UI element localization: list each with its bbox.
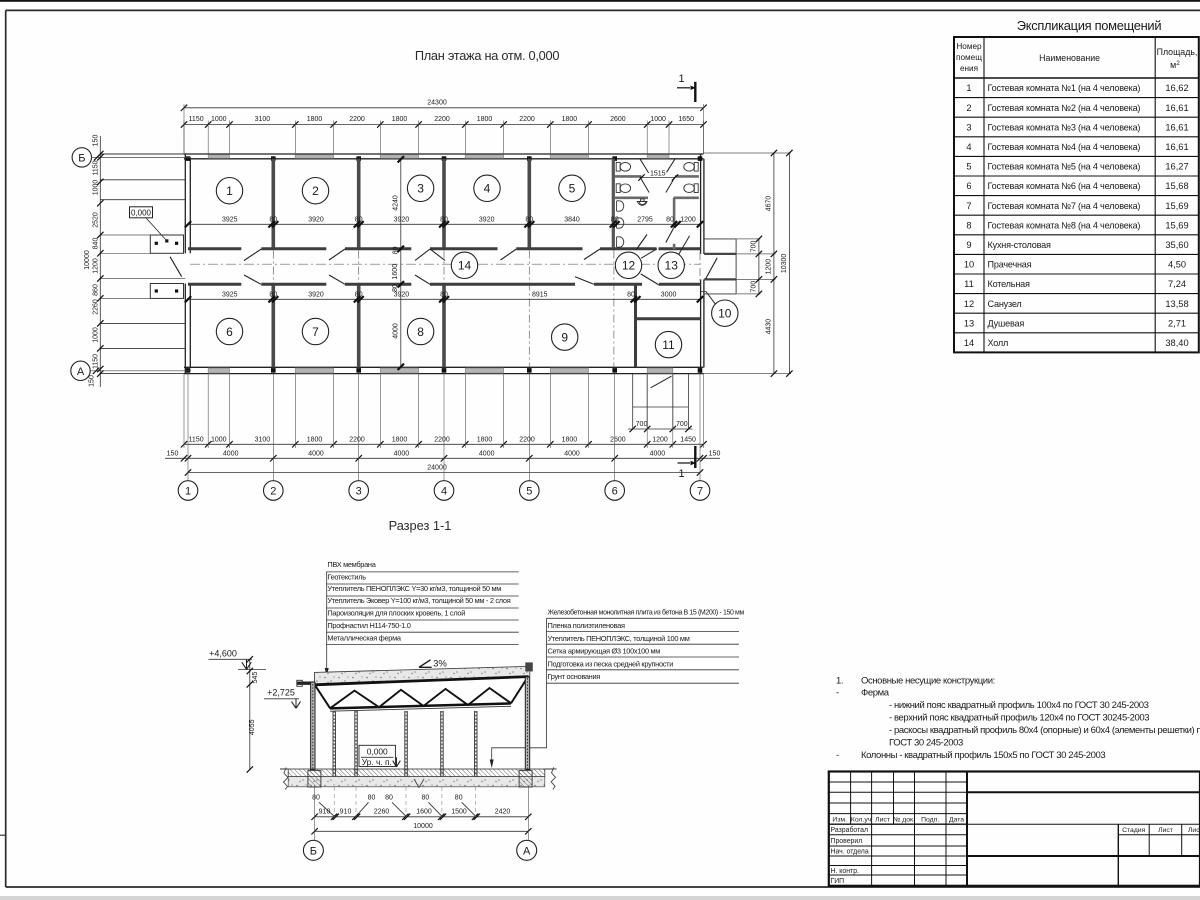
svg-text:1800: 1800 bbox=[392, 436, 408, 443]
svg-text:80: 80 bbox=[392, 284, 399, 292]
svg-text:3: 3 bbox=[417, 182, 424, 196]
svg-text:13,58: 13,58 bbox=[1165, 299, 1188, 309]
svg-text:1150: 1150 bbox=[189, 436, 204, 443]
svg-text:4000: 4000 bbox=[650, 450, 666, 457]
svg-text:Гостевая комната №8 (на 4 чело: Гостевая комната №8 (на 4 человека) bbox=[988, 220, 1141, 230]
svg-text:Листов: Листов bbox=[1188, 827, 1200, 834]
svg-text:Гостевая комната №4 (на 4 чело: Гостевая комната №4 (на 4 человека) bbox=[988, 142, 1141, 152]
svg-text:2200: 2200 bbox=[519, 436, 535, 443]
svg-text:3: 3 bbox=[356, 486, 362, 498]
svg-text:4: 4 bbox=[484, 182, 491, 196]
svg-text:Дата: Дата bbox=[949, 817, 964, 824]
svg-text:1200: 1200 bbox=[765, 259, 772, 275]
svg-text:+4,600: +4,600 bbox=[209, 648, 237, 658]
svg-text:5: 5 bbox=[526, 486, 532, 498]
svg-text:ПВХ мембрана: ПВХ мембрана bbox=[327, 560, 376, 569]
svg-text:Разрез 1-1: Разрез 1-1 bbox=[389, 518, 452, 533]
svg-text:9: 9 bbox=[966, 240, 971, 250]
svg-text:Колонны - квадратный профиль 1: Колонны - квадратный профиль 150х5 по ГО… bbox=[861, 750, 1105, 761]
svg-text:16,61: 16,61 bbox=[1165, 122, 1188, 132]
svg-text:ГИП: ГИП bbox=[831, 878, 845, 885]
svg-text:10000: 10000 bbox=[84, 250, 91, 270]
svg-text:2200: 2200 bbox=[434, 436, 450, 443]
svg-text:4000: 4000 bbox=[392, 323, 399, 339]
svg-text:Ур. ч. п.: Ур. ч. п. bbox=[362, 757, 392, 767]
svg-text:80: 80 bbox=[385, 795, 393, 802]
svg-text:3920: 3920 bbox=[479, 216, 495, 223]
svg-text:1800: 1800 bbox=[392, 116, 408, 123]
svg-text:15,69: 15,69 bbox=[1165, 201, 1188, 211]
svg-text:16,62: 16,62 bbox=[1165, 83, 1188, 93]
svg-text:14: 14 bbox=[964, 338, 974, 348]
svg-text:7: 7 bbox=[312, 325, 319, 339]
svg-text:Душевая: Душевая bbox=[988, 318, 1025, 328]
svg-text:3920: 3920 bbox=[308, 291, 324, 298]
svg-text:10000: 10000 bbox=[413, 823, 433, 830]
svg-text:Кол.уч: Кол.уч bbox=[851, 817, 872, 824]
svg-text:2600: 2600 bbox=[610, 436, 626, 443]
svg-text:80: 80 bbox=[355, 291, 363, 298]
svg-text:10: 10 bbox=[964, 260, 974, 270]
svg-text:ения: ения bbox=[960, 64, 978, 73]
svg-text:Железобетонная монолитная плит: Железобетонная монолитная плита из бетон… bbox=[548, 609, 745, 617]
svg-text:150: 150 bbox=[89, 375, 96, 387]
svg-text:Котельная: Котельная bbox=[988, 279, 1030, 289]
svg-text:4000: 4000 bbox=[223, 450, 239, 457]
svg-text:2200: 2200 bbox=[349, 116, 365, 123]
svg-text:4000: 4000 bbox=[479, 450, 495, 457]
svg-text:80: 80 bbox=[666, 216, 674, 223]
svg-text:2795: 2795 bbox=[637, 216, 653, 223]
svg-text:910: 910 bbox=[340, 809, 352, 816]
svg-text:12: 12 bbox=[964, 299, 974, 309]
svg-text:12: 12 bbox=[622, 259, 636, 273]
svg-text:13: 13 bbox=[665, 259, 679, 273]
svg-text:- верхний пояс квадратный проф: - верхний пояс квадратный профиль 120х4 … bbox=[889, 713, 1149, 724]
svg-text:4240: 4240 bbox=[392, 195, 399, 211]
svg-text:Гостевая комната №7 (на 4 чело: Гостевая комната №7 (на 4 человека) bbox=[988, 201, 1141, 211]
svg-text:3925: 3925 bbox=[222, 216, 238, 223]
svg-text:4,50: 4,50 bbox=[1168, 260, 1186, 270]
svg-text:1200: 1200 bbox=[680, 216, 696, 223]
svg-text:Номер: Номер bbox=[956, 42, 982, 51]
svg-text:Утеплитель ПЕНОПЛЭКС Y=30 кг/м: Утеплитель ПЕНОПЛЭКС Y=30 кг/м3, толщино… bbox=[327, 584, 501, 593]
svg-text:Ферма: Ферма bbox=[861, 688, 890, 699]
svg-text:ГОСТ 30 245-2003: ГОСТ 30 245-2003 bbox=[889, 738, 963, 749]
svg-text:Изм.: Изм. bbox=[832, 817, 847, 824]
svg-text:5: 5 bbox=[966, 162, 971, 172]
svg-text:910: 910 bbox=[319, 809, 331, 816]
svg-text:Грунт основания: Грунт основания bbox=[548, 672, 601, 681]
svg-text:1: 1 bbox=[678, 468, 684, 480]
svg-text:1800: 1800 bbox=[562, 116, 578, 123]
svg-text:150: 150 bbox=[167, 450, 179, 457]
svg-text:1800: 1800 bbox=[307, 436, 323, 443]
svg-text:2260: 2260 bbox=[374, 809, 390, 816]
svg-text:2260: 2260 bbox=[92, 299, 99, 315]
svg-text:Б: Б bbox=[78, 152, 85, 164]
svg-text:11: 11 bbox=[964, 279, 974, 289]
svg-text:11: 11 bbox=[662, 338, 675, 352]
svg-text:1200: 1200 bbox=[92, 258, 99, 274]
svg-text:2,71: 2,71 bbox=[1168, 318, 1186, 328]
svg-text:2520: 2520 bbox=[92, 212, 99, 228]
svg-text:1000: 1000 bbox=[650, 116, 666, 123]
svg-text:1450: 1450 bbox=[680, 436, 696, 443]
svg-text:1000: 1000 bbox=[92, 180, 99, 196]
svg-text:2200: 2200 bbox=[434, 116, 450, 123]
svg-text:7: 7 bbox=[966, 201, 971, 211]
svg-text:860: 860 bbox=[92, 284, 99, 296]
svg-text:80: 80 bbox=[312, 795, 320, 802]
svg-text:8915: 8915 bbox=[532, 291, 548, 298]
svg-text:1600: 1600 bbox=[416, 809, 432, 816]
svg-text:6: 6 bbox=[226, 325, 233, 339]
svg-text:Гостевая комната №3 (на 4 чело: Гостевая комната №3 (на 4 человека) bbox=[988, 122, 1141, 132]
svg-text:4: 4 bbox=[966, 142, 971, 152]
svg-text:2: 2 bbox=[312, 184, 319, 198]
svg-text:Лист: Лист bbox=[1158, 827, 1173, 834]
svg-text:545: 545 bbox=[252, 672, 259, 684]
svg-text:3000: 3000 bbox=[661, 291, 677, 298]
svg-text:Экспликация помещений: Экспликация помещений bbox=[1017, 18, 1162, 33]
svg-text:4: 4 bbox=[441, 486, 447, 498]
svg-text:4670: 4670 bbox=[765, 196, 772, 212]
svg-text:3925: 3925 bbox=[222, 291, 238, 298]
svg-text:Подготовка из песка средней кр: Подготовка из песка средней крупности bbox=[548, 659, 674, 668]
svg-text:1.: 1. bbox=[836, 675, 843, 686]
svg-text:1515: 1515 bbox=[650, 170, 666, 177]
svg-text:2: 2 bbox=[966, 103, 971, 113]
svg-text:1000: 1000 bbox=[211, 116, 227, 123]
svg-text:Утеплитель Эковер Y=100 кг/м3,: Утеплитель Эковер Y=100 кг/м3, толщиной … bbox=[327, 596, 510, 605]
svg-text:80: 80 bbox=[269, 216, 277, 223]
svg-text:9: 9 bbox=[561, 330, 568, 344]
svg-text:№ док.: № док. bbox=[893, 817, 915, 824]
svg-text:Утеплитель ПЕНОПЛЭКС, толщиной: Утеплитель ПЕНОПЛЭКС, толщиной 100 мм bbox=[548, 634, 690, 643]
svg-text:1150: 1150 bbox=[92, 354, 99, 369]
svg-text:4000: 4000 bbox=[564, 450, 580, 457]
svg-text:7: 7 bbox=[697, 486, 703, 498]
svg-text:1000: 1000 bbox=[92, 327, 99, 343]
svg-text:Кухня-столовая: Кухня-столовая bbox=[988, 240, 1051, 250]
svg-text:- раскосы квадратный профиль 8: - раскосы квадратный профиль 80х4 (опорн… bbox=[889, 725, 1200, 736]
svg-text:помещ: помещ bbox=[956, 53, 982, 62]
svg-text:38,40: 38,40 bbox=[1165, 338, 1188, 348]
svg-text:2200: 2200 bbox=[519, 116, 535, 123]
svg-text:Гостевая комната №1 (на 4 чело: Гостевая комната №1 (на 4 человека) bbox=[988, 83, 1141, 93]
svg-text:6: 6 bbox=[612, 486, 618, 498]
svg-text:Металлическая ферма: Металлическая ферма bbox=[327, 634, 401, 643]
svg-text:1650: 1650 bbox=[678, 116, 694, 123]
svg-text:14: 14 bbox=[458, 259, 472, 273]
svg-text:А: А bbox=[77, 366, 85, 378]
svg-text:80: 80 bbox=[455, 795, 463, 802]
svg-text:1: 1 bbox=[185, 486, 191, 498]
svg-text:2200: 2200 bbox=[349, 436, 365, 443]
svg-text:1200: 1200 bbox=[652, 436, 668, 443]
svg-text:80: 80 bbox=[611, 216, 619, 223]
svg-text:8: 8 bbox=[966, 220, 971, 230]
svg-text:- нижний пояс квадратный профи: - нижний пояс квадратный профиль 100х4 п… bbox=[889, 700, 1149, 711]
svg-text:Геотекстиль: Геотекстиль bbox=[327, 572, 366, 581]
svg-text:Основные несущие конструкции:: Основные несущие конструкции: bbox=[861, 675, 995, 686]
svg-text:80: 80 bbox=[355, 216, 363, 223]
svg-text:Прачечная: Прачечная bbox=[988, 260, 1032, 270]
svg-text:А: А bbox=[523, 845, 531, 857]
svg-text:8: 8 bbox=[417, 325, 424, 339]
svg-text:1000: 1000 bbox=[211, 436, 227, 443]
svg-text:3: 3 bbox=[966, 122, 971, 132]
svg-text:2: 2 bbox=[270, 486, 276, 498]
svg-text:4055: 4055 bbox=[249, 719, 256, 735]
svg-text:+2,725: +2,725 bbox=[267, 687, 295, 697]
svg-text:80: 80 bbox=[627, 291, 635, 298]
svg-text:24300: 24300 bbox=[427, 100, 447, 107]
svg-text:10300: 10300 bbox=[781, 254, 788, 274]
svg-text:700: 700 bbox=[636, 421, 648, 428]
svg-text:Стадия: Стадия bbox=[1122, 827, 1145, 834]
svg-text:16,27: 16,27 bbox=[1165, 162, 1188, 172]
svg-text:1800: 1800 bbox=[562, 436, 578, 443]
svg-text:-: - bbox=[836, 688, 839, 699]
svg-text:Гостевая комната №6 (на 4 чело: Гостевая комната №6 (на 4 человека) bbox=[988, 181, 1141, 191]
svg-text:1800: 1800 bbox=[477, 116, 493, 123]
svg-text:6: 6 bbox=[966, 181, 971, 191]
svg-text:1: 1 bbox=[966, 83, 971, 93]
svg-text:Нач. отдела: Нач. отдела bbox=[831, 848, 869, 855]
svg-text:700: 700 bbox=[676, 421, 688, 428]
svg-text:Холл: Холл bbox=[988, 338, 1009, 348]
svg-text:4000: 4000 bbox=[308, 450, 324, 457]
svg-text:3100: 3100 bbox=[255, 116, 271, 123]
svg-text:4430: 4430 bbox=[765, 319, 772, 335]
svg-text:35,60: 35,60 bbox=[1165, 240, 1188, 250]
svg-text:Профнастил Н114-750-1.0: Профнастил Н114-750-1.0 bbox=[327, 621, 410, 630]
svg-text:1: 1 bbox=[226, 184, 233, 198]
svg-text:Б: Б bbox=[310, 845, 317, 857]
svg-text:Пароизоляция для плоских крове: Пароизоляция для плоских кровель, 1 слой bbox=[327, 608, 465, 617]
svg-text:80: 80 bbox=[440, 216, 448, 223]
svg-text:Пленка полиэтиленовая: Пленка полиэтиленовая bbox=[548, 621, 625, 630]
svg-text:1800: 1800 bbox=[307, 116, 323, 123]
svg-text:16,61: 16,61 bbox=[1165, 142, 1188, 152]
svg-text:16,61: 16,61 bbox=[1165, 103, 1188, 113]
svg-text:1600: 1600 bbox=[392, 264, 399, 280]
svg-text:13: 13 bbox=[964, 318, 974, 328]
svg-text:700: 700 bbox=[750, 281, 757, 293]
svg-text:Наименование: Наименование bbox=[1039, 53, 1100, 63]
svg-text:2420: 2420 bbox=[495, 809, 511, 816]
svg-text:10: 10 bbox=[718, 307, 732, 321]
svg-text:Сетка армирующая Ø3 100х100 мм: Сетка армирующая Ø3 100х100 мм bbox=[548, 647, 661, 656]
svg-text:80: 80 bbox=[440, 291, 448, 298]
svg-text:80: 80 bbox=[368, 795, 376, 802]
svg-text:150: 150 bbox=[709, 450, 721, 457]
svg-text:840: 840 bbox=[92, 238, 99, 250]
svg-text:7,24: 7,24 bbox=[1168, 279, 1186, 289]
svg-text:1800: 1800 bbox=[477, 436, 493, 443]
svg-text:Гостевая комната №2 (на 4 чело: Гостевая комната №2 (на 4 человека) bbox=[988, 103, 1141, 113]
svg-text:4000: 4000 bbox=[394, 450, 410, 457]
svg-text:5: 5 bbox=[569, 182, 576, 196]
svg-text:-: - bbox=[836, 750, 839, 761]
svg-text:Разработал: Разработал bbox=[831, 826, 869, 834]
svg-text:1150: 1150 bbox=[189, 116, 204, 123]
svg-text:3840: 3840 bbox=[564, 216, 580, 223]
svg-text:Н. контр.: Н. контр. bbox=[831, 868, 860, 875]
svg-text:Подп.: Подп. bbox=[921, 817, 939, 824]
svg-text:1500: 1500 bbox=[451, 809, 467, 816]
svg-text:Лист: Лист bbox=[875, 817, 890, 824]
svg-text:Гостевая комната №5 (на 4 чело: Гостевая комната №5 (на 4 человека) bbox=[988, 162, 1141, 172]
svg-text:150: 150 bbox=[92, 135, 99, 147]
svg-text:80: 80 bbox=[269, 291, 277, 298]
svg-text:Площадь,: Площадь, bbox=[1157, 47, 1198, 57]
svg-text:700: 700 bbox=[750, 240, 757, 252]
svg-text:Санузел: Санузел bbox=[988, 299, 1022, 309]
svg-text:1150: 1150 bbox=[92, 160, 99, 175]
svg-text:3%: 3% bbox=[433, 659, 447, 670]
svg-text:План этажа на отм. 0,000: План этажа на отм. 0,000 bbox=[415, 48, 560, 63]
svg-text:0,000: 0,000 bbox=[131, 208, 152, 217]
svg-text:3920: 3920 bbox=[394, 216, 410, 223]
svg-text:1: 1 bbox=[678, 73, 684, 85]
svg-text:15,69: 15,69 bbox=[1165, 220, 1188, 230]
svg-text:15,68: 15,68 bbox=[1165, 181, 1188, 191]
svg-text:80: 80 bbox=[422, 795, 430, 802]
svg-text:Проверил: Проверил bbox=[831, 838, 863, 845]
svg-text:3920: 3920 bbox=[308, 216, 324, 223]
svg-text:2600: 2600 bbox=[610, 116, 626, 123]
svg-text:80: 80 bbox=[392, 246, 399, 254]
svg-text:0,000: 0,000 bbox=[367, 746, 388, 756]
svg-text:80: 80 bbox=[525, 216, 533, 223]
svg-text:3100: 3100 bbox=[255, 436, 271, 443]
